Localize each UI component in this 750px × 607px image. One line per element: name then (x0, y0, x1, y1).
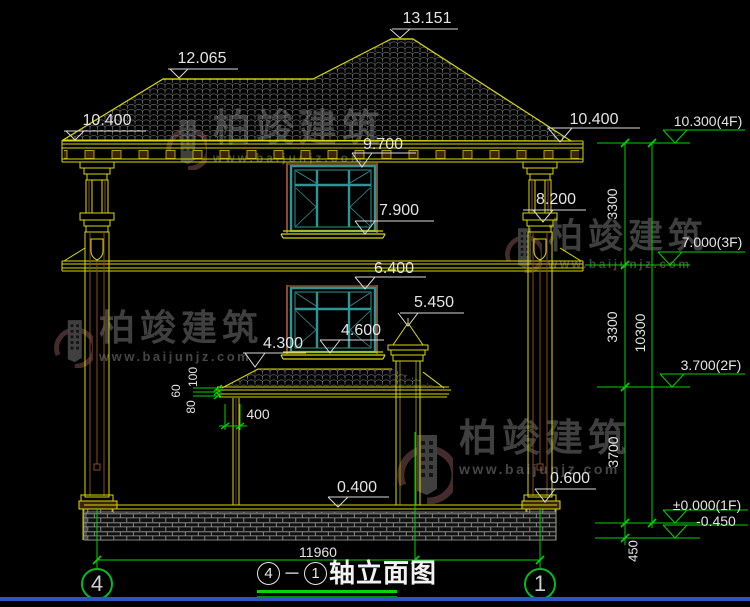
axis-bubble-label: 1 (534, 573, 546, 595)
cad-viewport: 柏竣建筑 www.baijunjz.com 柏竣建筑 www.baijunjz.… (0, 0, 750, 607)
main-roof (63, 39, 571, 141)
right-column (522, 162, 560, 540)
ground-plinth (84, 505, 557, 540)
drawing-title: 4 － 1 轴立面图 (257, 560, 437, 586)
title-dash: － (283, 560, 301, 586)
title-text: 轴立面图 (329, 560, 437, 586)
lower-window (281, 285, 385, 359)
axis-bubble-label: 4 (91, 573, 103, 595)
axis-bubble-4: 4 (81, 568, 113, 600)
left-column (79, 162, 117, 540)
floor-band (62, 248, 583, 271)
axis-bubble-1: 1 (524, 568, 556, 600)
title-underline (257, 590, 397, 593)
window-bottom-border (0, 597, 750, 601)
chimney (388, 318, 428, 505)
eave-cornice (62, 141, 583, 162)
title-axis-from: 4 (257, 562, 280, 585)
porch-post (233, 398, 239, 505)
upper-window (281, 163, 385, 238)
title-axis-to: 1 (304, 562, 327, 585)
porch-roof (215, 369, 451, 397)
elevation-drawing (0, 0, 750, 607)
